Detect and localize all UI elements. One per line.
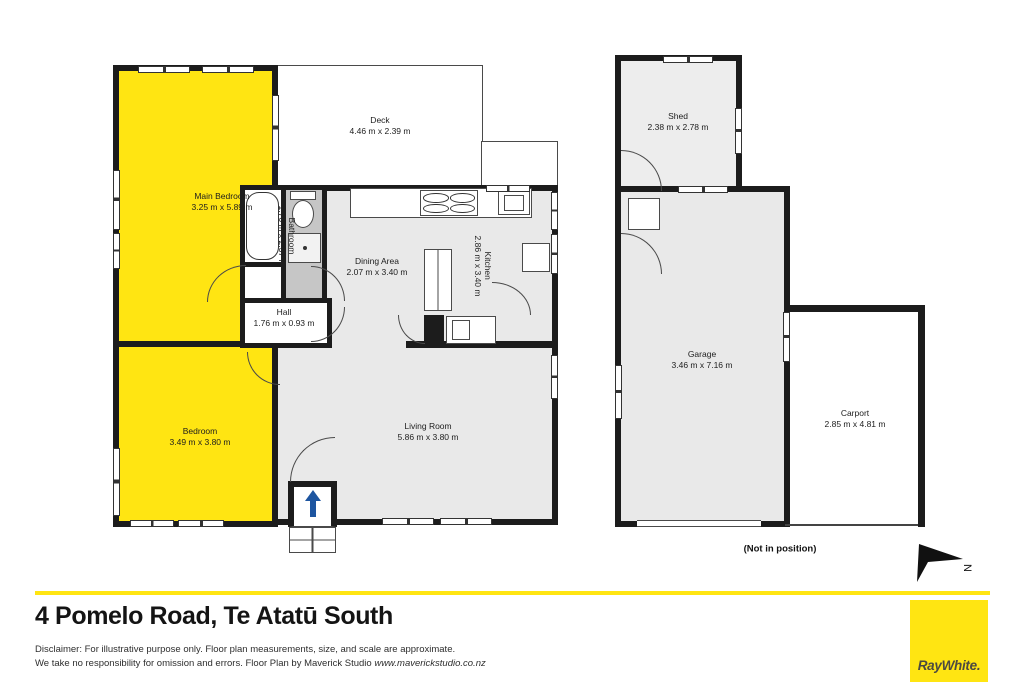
room-label-bedroom: Bedroom3.49 m x 3.80 m bbox=[170, 426, 231, 448]
room-label-shed: Shed2.38 m x 2.78 m bbox=[648, 111, 709, 133]
window bbox=[113, 233, 120, 269]
note-not-in-position: (Not in position) bbox=[744, 544, 817, 555]
brand-logo: RayWhite. bbox=[910, 600, 988, 682]
window bbox=[113, 448, 120, 516]
room-label-deck: Deck4.46 m x 2.39 m bbox=[350, 115, 411, 137]
brand-logo-label: RayWhite. bbox=[918, 658, 981, 673]
window bbox=[130, 520, 174, 527]
fridge-icon bbox=[522, 243, 550, 272]
dining-table-icon bbox=[424, 249, 452, 311]
room-label-garage: Garage3.46 m x 7.16 m bbox=[672, 349, 733, 371]
window bbox=[272, 95, 279, 161]
entrance-steps bbox=[289, 527, 336, 553]
carport-open-edge bbox=[785, 524, 925, 526]
disclaimer: Disclaimer: For illustrative purpose onl… bbox=[35, 643, 486, 670]
window bbox=[113, 170, 120, 230]
carport-wall-right bbox=[918, 305, 925, 527]
kitchen-sink-basin-icon bbox=[504, 195, 524, 211]
window bbox=[440, 518, 492, 525]
window bbox=[382, 518, 434, 525]
window bbox=[678, 186, 728, 193]
window bbox=[615, 365, 622, 419]
stove-icon bbox=[420, 190, 478, 216]
window bbox=[486, 185, 530, 192]
room-label-main-bedroom: Main Bedroom3.25 m x 5.89 m bbox=[192, 191, 253, 213]
window bbox=[783, 312, 790, 362]
window bbox=[178, 520, 224, 527]
page-title: 4 Pomelo Road, Te Atatū South bbox=[35, 602, 393, 631]
room-label-kitchen: Kitchen2.86 m x 3.40 m bbox=[473, 236, 493, 297]
window bbox=[551, 192, 558, 230]
north-label: N bbox=[961, 564, 973, 572]
window bbox=[202, 66, 254, 73]
window bbox=[138, 66, 190, 73]
room-label-hall: Hall1.76 m x 0.93 m bbox=[254, 307, 315, 329]
garage-door-opening bbox=[637, 520, 761, 527]
room-label-living-room: Living Room5.86 m x 3.80 m bbox=[398, 421, 459, 443]
toilet-tank-icon bbox=[290, 191, 316, 200]
shower-drain-icon bbox=[303, 246, 307, 250]
room-label-carport: Carport2.85 m x 4.81 m bbox=[825, 408, 886, 430]
window bbox=[663, 56, 713, 63]
appliance-door-icon bbox=[452, 320, 470, 340]
room-label-dining-area: Dining Area2.07 m x 3.40 m bbox=[347, 256, 408, 278]
disclaimer-url: www.maverickstudio.co.nz bbox=[374, 658, 485, 669]
disclaimer-line-2: We take no responsibility for omission a… bbox=[35, 657, 486, 671]
floorplan-page: { "floorplan": { "rooms": { "main_bedroo… bbox=[0, 0, 1024, 682]
entrance-arrow-icon bbox=[304, 490, 322, 518]
garage-heater-icon bbox=[628, 198, 660, 230]
window bbox=[735, 108, 742, 154]
window bbox=[551, 234, 558, 274]
divider-line bbox=[35, 591, 990, 595]
disclaimer-line-1: Disclaimer: For illustrative purpose onl… bbox=[35, 643, 486, 657]
room-label-bathroom: Bathroom1.76 m x 2.37 m bbox=[277, 206, 297, 267]
interior-wall-stub bbox=[424, 315, 444, 348]
north-arrow-icon bbox=[916, 542, 966, 584]
carport-wall-top bbox=[785, 305, 925, 312]
window bbox=[551, 355, 558, 399]
